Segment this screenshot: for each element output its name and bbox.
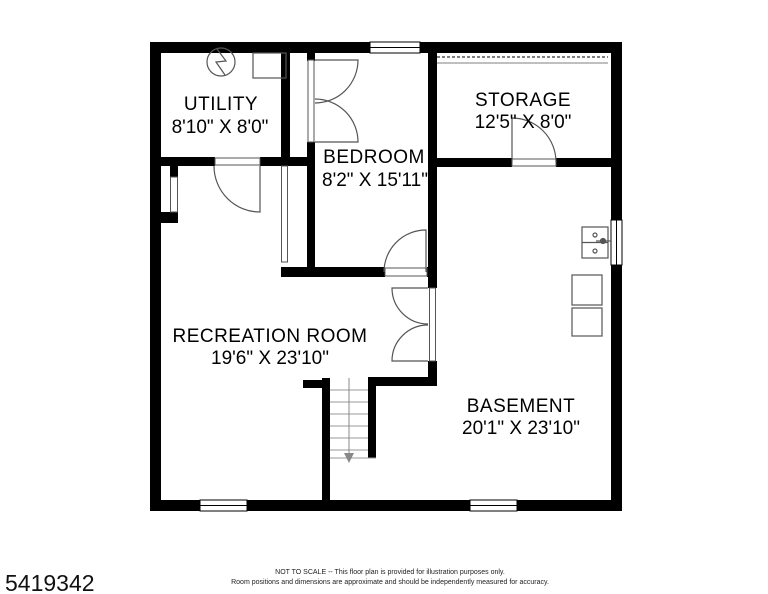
stair-top-wall bbox=[368, 377, 437, 386]
utility-door-threshold bbox=[215, 158, 260, 165]
outer-wall-left bbox=[150, 42, 161, 511]
stair-stub-wall bbox=[303, 380, 322, 388]
room-dims-recreation: 19'6" X 23'10" bbox=[211, 348, 329, 369]
room-dims-utility: 8'10" X 8'0" bbox=[172, 117, 269, 138]
wall-shaft bbox=[282, 166, 288, 262]
closet-door-frame bbox=[308, 60, 314, 142]
room-label-recreation: RECREATION ROOM bbox=[172, 326, 367, 347]
floor-plan-drawing: UTILITY 8'10" X 8'0" STORAGE 12'5" X 8'0… bbox=[0, 0, 768, 594]
room-label-utility: UTILITY bbox=[184, 94, 258, 115]
room-label-bedroom: BEDROOM bbox=[323, 147, 425, 168]
stair-left-wall bbox=[322, 378, 330, 500]
utility-bottom-wall-left bbox=[150, 157, 215, 166]
bedroom-left-wall-bottom bbox=[307, 142, 315, 277]
disclaimer-line-2: Room positions and dimensions are approx… bbox=[231, 579, 549, 586]
storage-door-threshold bbox=[512, 159, 556, 166]
left-niche-opening bbox=[171, 177, 178, 212]
room-label-basement: BASEMENT bbox=[467, 396, 576, 417]
double-door-frame bbox=[430, 288, 436, 361]
outer-wall-right bbox=[611, 42, 622, 511]
room-dims-basement: 20'1" X 23'10" bbox=[462, 418, 580, 439]
bedroom-door-threshold bbox=[385, 268, 427, 276]
sink-faucet-knob bbox=[601, 239, 606, 244]
room-dims-bedroom: 8'2" X 15'11" bbox=[322, 170, 428, 191]
left-niche-stub-top bbox=[170, 157, 178, 177]
disclaimer-line-1: NOT TO SCALE -- This floor plan is provi… bbox=[275, 569, 505, 576]
room-label-storage: STORAGE bbox=[475, 90, 571, 111]
room-dims-storage: 12'5" X 8'0" bbox=[475, 112, 572, 133]
utility-bottom-wall-right bbox=[260, 157, 315, 166]
listing-id: 5419342 bbox=[5, 570, 95, 594]
bedroom-bottom-wall-left bbox=[281, 267, 385, 277]
storage-bottom-wall-right bbox=[556, 158, 611, 167]
bedroom-right-wall bbox=[428, 42, 437, 288]
left-niche-stub-bottom bbox=[157, 212, 178, 223]
storage-bottom-wall-left bbox=[437, 158, 512, 167]
floor-plan-page: UTILITY 8'10" X 8'0" STORAGE 12'5" X 8'0… bbox=[0, 0, 768, 594]
stair-right-wall bbox=[368, 378, 376, 458]
